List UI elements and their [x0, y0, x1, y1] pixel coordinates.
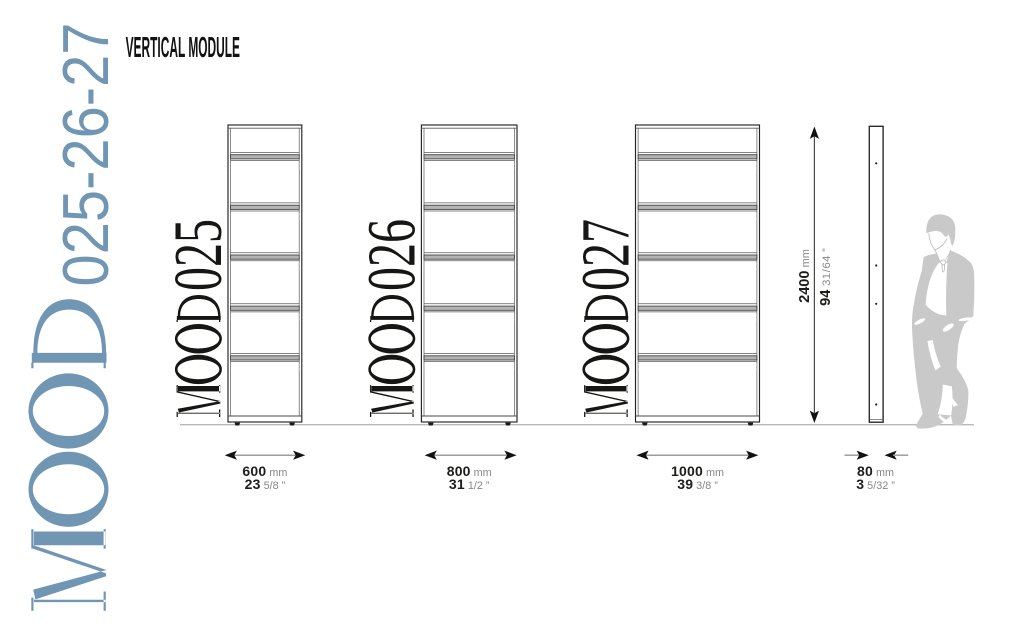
svg-text:2400 mm: 2400 mm [797, 249, 813, 303]
svg-text:025-26-27: 025-26-27 [49, 23, 122, 287]
svg-text:026: 026 [353, 219, 429, 291]
svg-text:025: 025 [160, 219, 236, 291]
svg-text:VERTICAL MODULE: VERTICAL MODULE [126, 32, 240, 64]
svg-text:94 31/64 ”: 94 31/64 ” [818, 248, 834, 306]
svg-text:027: 027 [568, 219, 644, 291]
